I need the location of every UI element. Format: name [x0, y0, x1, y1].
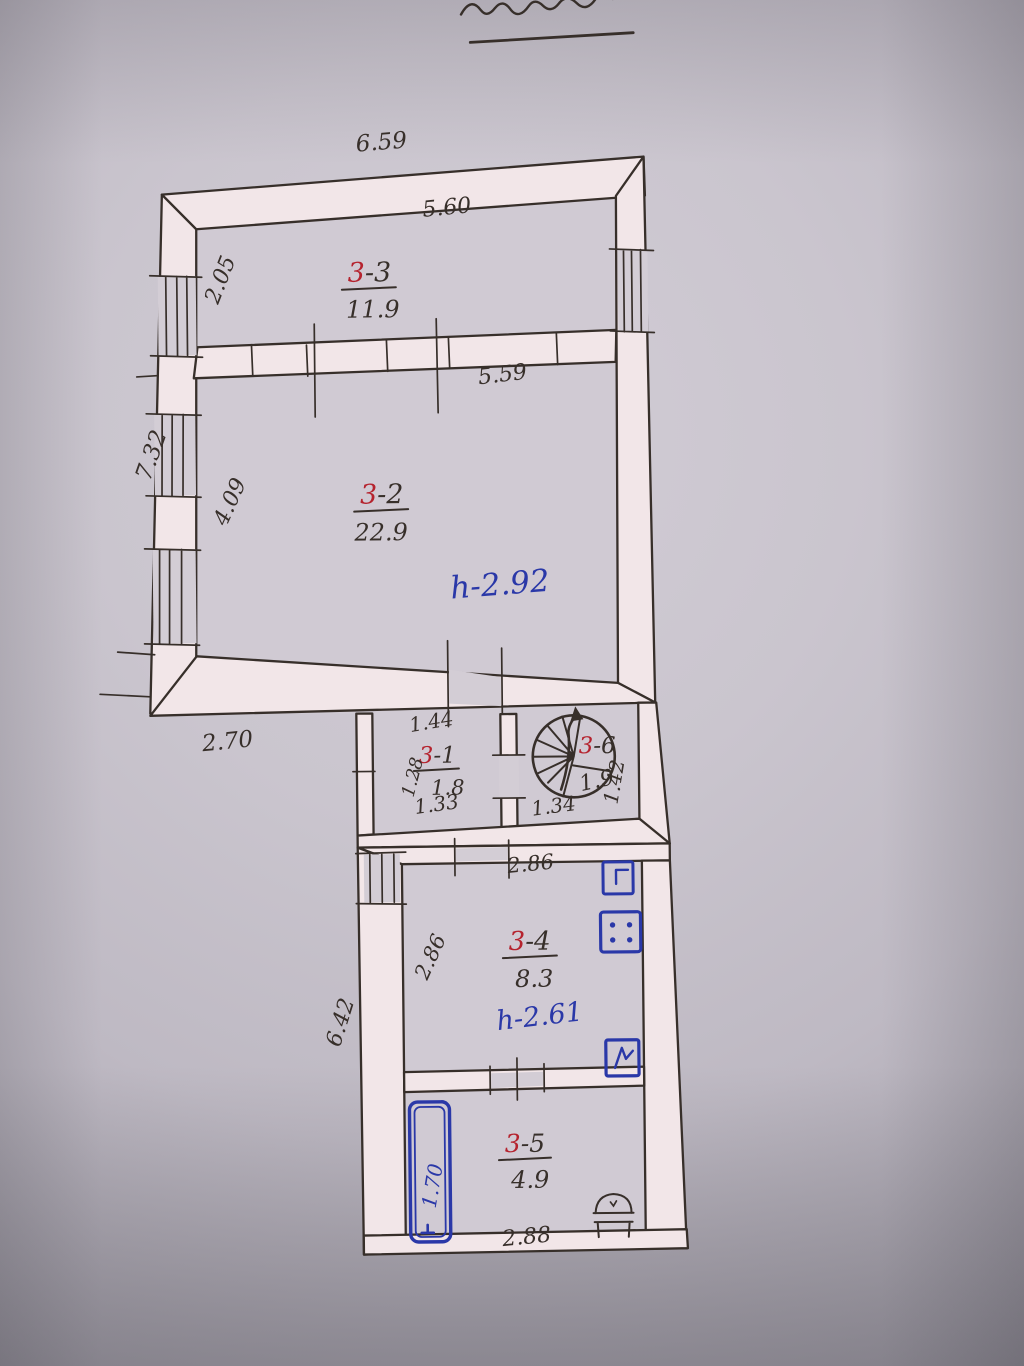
dim-room35-width: 2.88: [500, 1222, 552, 1252]
dim-lower-left-offset: 2.70: [200, 726, 255, 757]
photographed-paper-plan: 3-3 11.9 3-2 22.9 h-2.92 3-1 1.8 3-6 1.9: [0, 0, 1024, 1366]
room-3-5-area: 4.9: [510, 1166, 549, 1194]
wall-lower-left: [358, 847, 406, 1254]
svg-text:3-5: 3-5: [505, 1129, 546, 1158]
dim-upper-width: 6.59: [355, 128, 408, 158]
wall-right-upper: [612, 157, 655, 703]
door-opening-31: [499, 755, 519, 798]
wall-31-left: [356, 713, 373, 835]
room-3-4-area: 8.3: [515, 965, 553, 993]
dim-lower-left-height: 6.42: [322, 995, 361, 1049]
title-underline: [470, 33, 633, 43]
wall-lower-right: [642, 860, 687, 1248]
svg-text:3-6: 3-6: [579, 733, 616, 759]
dim-room33-width: 5.60: [421, 193, 472, 223]
dim-room34-width: 2.86: [505, 850, 555, 879]
room-3-2-area: 22.9: [353, 518, 408, 547]
handwritten-title-fragment: [461, 0, 633, 42]
svg-text:3-4: 3-4: [509, 927, 551, 957]
svg-text:3-3: 3-3: [348, 257, 392, 288]
svg-text:3-2: 3-2: [360, 479, 404, 510]
room-3-3-area: 11.9: [346, 295, 400, 324]
door-opening-34: [456, 847, 508, 862]
floor-plan-drawing: 3-3 11.9 3-2 22.9 h-2.92 3-1 1.8 3-6 1.9: [0, 0, 1024, 1366]
